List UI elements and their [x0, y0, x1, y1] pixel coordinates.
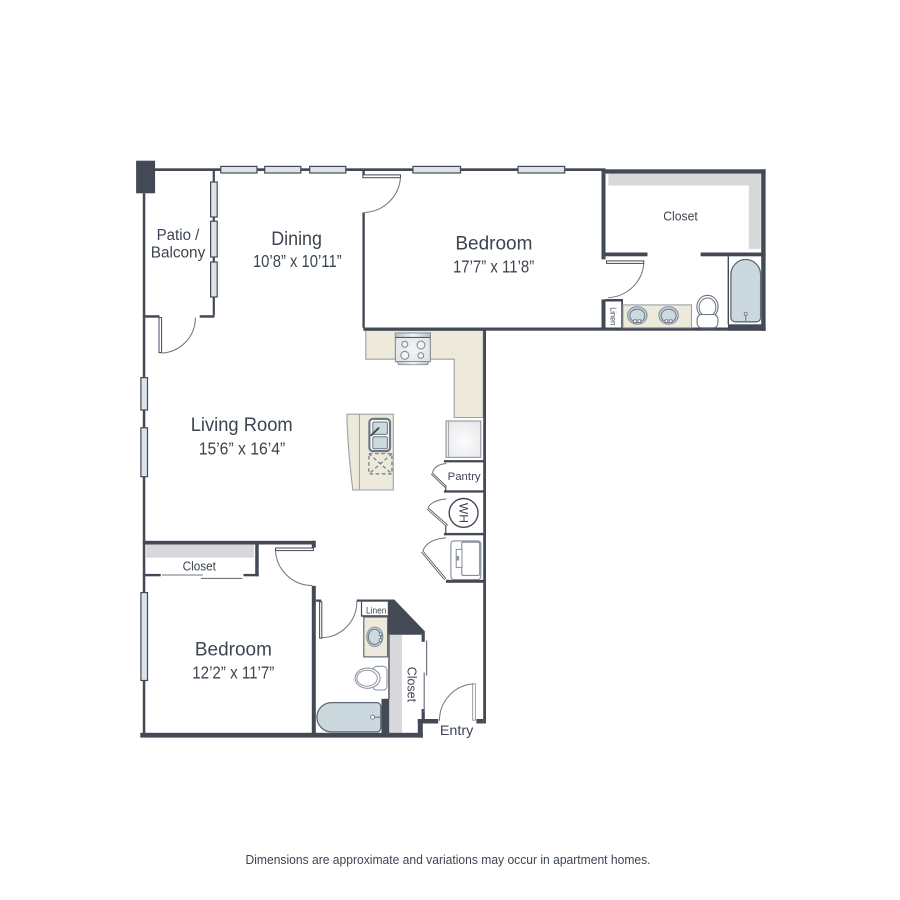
svg-text:Balcony: Balcony [151, 244, 206, 261]
svg-text:Bedroom: Bedroom [455, 234, 532, 255]
svg-text:WH: WH [456, 503, 470, 523]
svg-text:Dimensions are approximate and: Dimensions are approximate and variation… [246, 852, 651, 867]
svg-text:Closet: Closet [663, 208, 698, 223]
svg-text:17’7” x 11’8”: 17’7” x 11’8” [453, 257, 534, 277]
svg-text:Linen: Linen [609, 307, 618, 325]
svg-text:Closet: Closet [405, 667, 420, 703]
svg-text:Patio /: Patio / [157, 227, 200, 244]
svg-text:Dining: Dining [271, 229, 322, 250]
svg-text:Pantry: Pantry [448, 471, 482, 483]
svg-text:10’8” x 10’11”: 10’8” x 10’11” [253, 251, 342, 271]
svg-text:12’2” x 11’7”: 12’2” x 11’7” [192, 662, 274, 682]
svg-text:Closet: Closet [183, 559, 217, 574]
svg-text:Linen: Linen [366, 606, 386, 616]
svg-text:Living Room: Living Room [191, 415, 293, 436]
svg-text:Bedroom: Bedroom [195, 639, 272, 660]
svg-text:15’6” x 16’4”: 15’6” x 16’4” [199, 438, 286, 458]
svg-text:Entry: Entry [440, 722, 473, 738]
